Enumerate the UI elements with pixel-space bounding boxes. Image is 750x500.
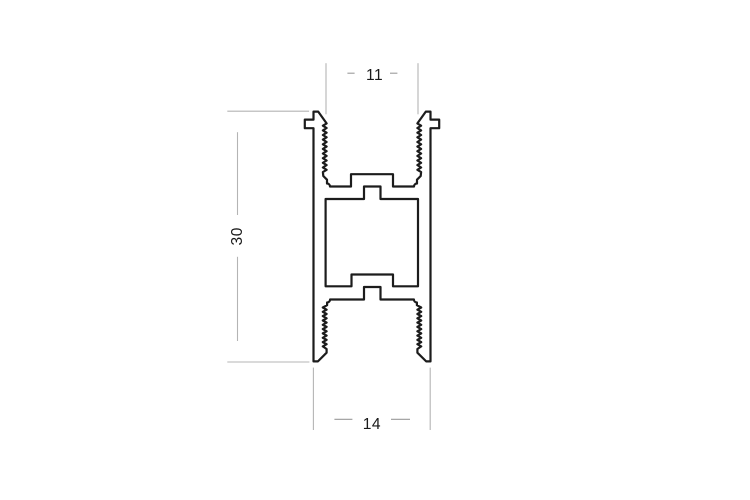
svg-text:30: 30 [229,227,246,245]
svg-text:11: 11 [366,67,383,84]
svg-text:14: 14 [363,416,381,433]
